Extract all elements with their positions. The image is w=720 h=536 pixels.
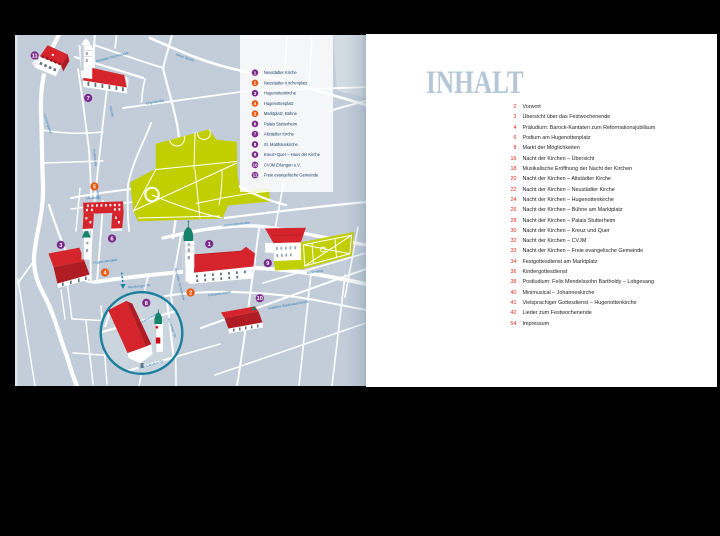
- svg-text:Hugenottenkirche: Hugenottenkirche: [264, 91, 297, 96]
- svg-text:Kreuz+Quer – Haus der Kirche: Kreuz+Quer – Haus der Kirche: [264, 152, 321, 157]
- svg-text:Palais Stutterheim: Palais Stutterheim: [264, 121, 298, 126]
- svg-text:Neustädter Kirchenplatz: Neustädter Kirchenplatz: [264, 80, 308, 85]
- svg-text:2: 2: [189, 291, 192, 297]
- svg-text:6: 6: [110, 237, 113, 243]
- svg-text:Hugenottenplatz: Hugenottenplatz: [264, 101, 294, 106]
- svg-text:Freie evangelische Gemeinde: Freie evangelische Gemeinde: [264, 173, 319, 178]
- svg-text:CVJM Erlangen e.V.: CVJM Erlangen e.V.: [264, 162, 301, 167]
- svg-text:10: 10: [252, 163, 258, 168]
- svg-text:St. Matthäuskirche: St. Matthäuskirche: [264, 142, 299, 147]
- svg-text:1: 1: [208, 242, 211, 248]
- svg-text:10: 10: [257, 296, 263, 302]
- svg-text:8: 8: [145, 301, 148, 307]
- svg-text:9: 9: [266, 261, 269, 267]
- svg-text:Altstädter Kirche: Altstädter Kirche: [264, 132, 295, 137]
- svg-text:11: 11: [253, 173, 258, 178]
- svg-text:Marktplatz, Bühne: Marktplatz, Bühne: [264, 111, 298, 116]
- svg-text:11: 11: [32, 54, 38, 60]
- svg-text:Neustädter Kirche: Neustädter Kirche: [264, 70, 297, 75]
- svg-text:7: 7: [87, 96, 90, 102]
- svg-text:5: 5: [93, 185, 96, 191]
- svg-text:3: 3: [59, 243, 62, 249]
